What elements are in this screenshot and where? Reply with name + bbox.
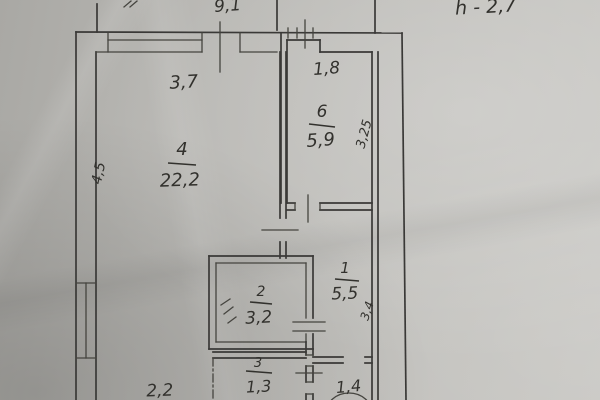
room2-number: 2: [257, 284, 266, 300]
dim-bottom: 2,2: [146, 381, 174, 400]
dim-room4-depth: 4,5: [89, 161, 109, 186]
room6-number: 6: [317, 102, 328, 122]
dim-closet: 1,4: [335, 376, 362, 397]
top-window-and-door: [96, 22, 277, 72]
dim-window-width: 3,7: [169, 71, 199, 93]
room6-area: 5,9: [306, 129, 336, 152]
floor-plan-photo: 9,1 h - 2,7 3,7 1,8 6 5,9 3,25 4 22,2 4,…: [0, 0, 600, 400]
room4-right-wall: [262, 52, 298, 258]
floor-plan-drawing: 9,1 h - 2,7 3,7 1,8 6 5,9 3,25 4 22,2 4,…: [0, 0, 600, 400]
room2-area: 3,2: [245, 307, 273, 328]
labels: 9,1 h - 2,7 3,7 1,8 6 5,9 3,25 4 22,2 4,…: [89, 0, 517, 400]
room3-area: 1,3: [246, 376, 272, 396]
dim-vestibule: 1,8: [312, 58, 341, 80]
room4-number: 4: [176, 139, 187, 160]
note-ceiling-height: h - 2,7: [455, 0, 517, 20]
outer-walls: [76, 32, 406, 400]
room4-area: 22,2: [159, 169, 200, 191]
room1-number: 1: [340, 259, 350, 277]
room1-area: 5,5: [331, 284, 359, 305]
door-swing-marks: [221, 299, 236, 323]
room3-number: 3: [254, 356, 262, 371]
handwriting-mark: [124, 1, 137, 7]
dim-top-width: 9,1: [213, 0, 241, 17]
dim-hall-depth: 3,4: [358, 300, 377, 322]
room2-walls: [209, 256, 325, 349]
left-window: [76, 283, 96, 358]
